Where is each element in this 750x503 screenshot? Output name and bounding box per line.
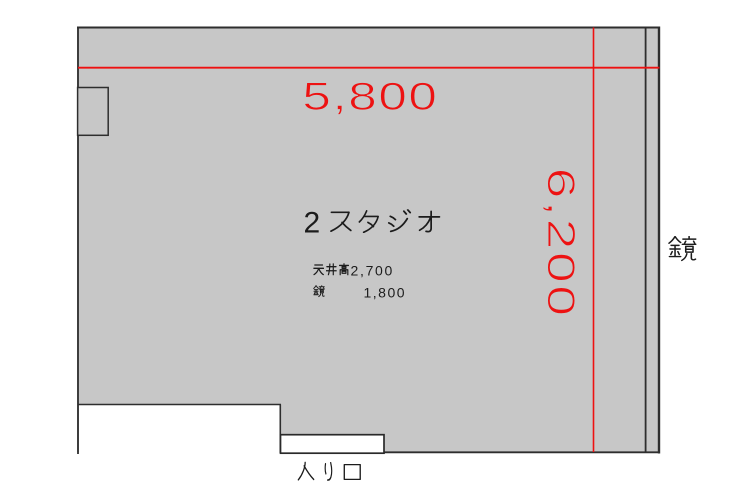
svg-text:5,800: 5,800	[302, 75, 438, 118]
svg-text:2,700: 2,700	[351, 263, 395, 279]
svg-text:1,800: 1,800	[364, 285, 407, 301]
svg-text:2: 2	[304, 207, 321, 240]
svg-text:6,200: 6,200	[539, 168, 582, 319]
